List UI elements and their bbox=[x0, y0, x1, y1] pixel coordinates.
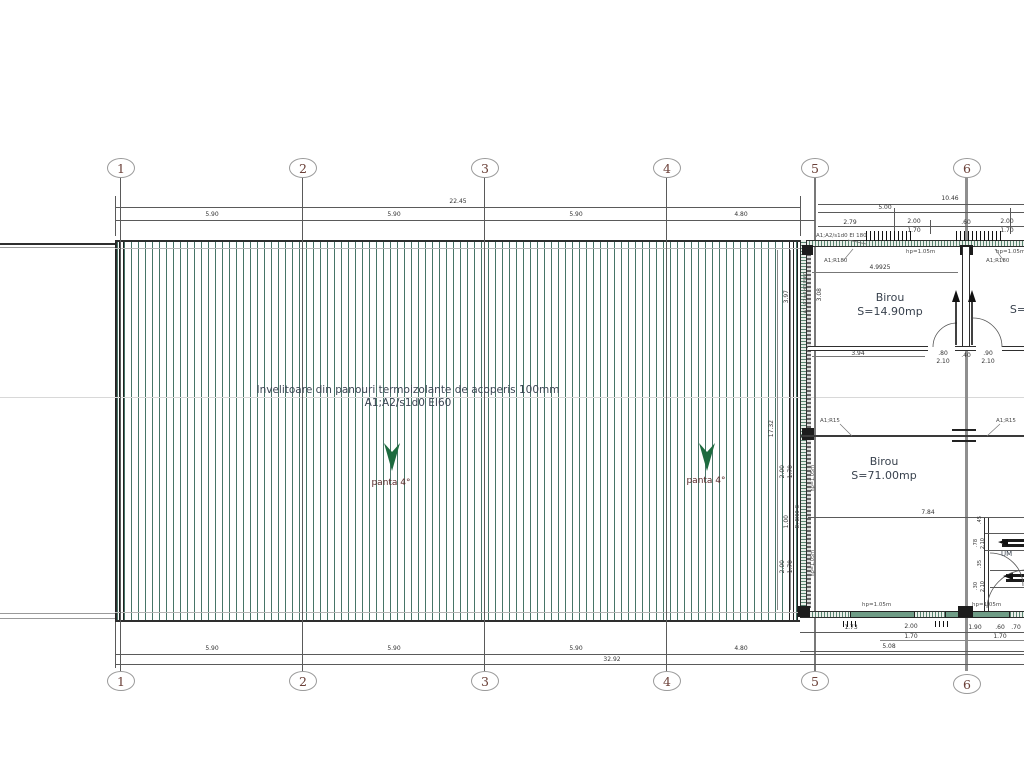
room-office2-area: S=71.00mp bbox=[851, 469, 916, 482]
entry-arrow-left-head-icon bbox=[952, 290, 960, 302]
left-wall-stub-top2 bbox=[0, 247, 115, 248]
dim-bottom-seg-2-3: 5.90 bbox=[387, 645, 400, 652]
window-symbol-south-2 bbox=[945, 611, 1010, 618]
axis-bubble-top-4: 4 bbox=[653, 158, 681, 178]
dim-annex-e: .70 bbox=[1011, 624, 1021, 631]
partition-horizontal-right bbox=[1002, 346, 1024, 351]
window-symbol-south-1 bbox=[850, 611, 915, 618]
dim-beam-span: 7.84 bbox=[921, 509, 934, 516]
dim-annex-b: 2.00 bbox=[904, 623, 917, 630]
column-nw bbox=[802, 245, 813, 255]
dim-annex-b2: 1.70 bbox=[904, 633, 917, 640]
axis-number: 4 bbox=[663, 161, 671, 176]
note-beam-fire-left: A1;R180 bbox=[824, 258, 847, 264]
dim-west-d: 2.00 bbox=[779, 560, 786, 573]
axis-number: 2 bbox=[299, 674, 307, 689]
note-hp-south-2: hp=1.05m bbox=[972, 602, 1001, 608]
dim-chain-inner bbox=[790, 250, 791, 610]
axis-bubble-bottom-3: 3 bbox=[471, 671, 499, 691]
beam-break-bottom bbox=[952, 440, 976, 442]
dim-top-total: 22.45 bbox=[449, 198, 466, 205]
dim-pier: .40 bbox=[961, 352, 971, 359]
um-shelf-3 bbox=[990, 570, 1024, 571]
dim-line-inner-width bbox=[812, 272, 958, 273]
annex-north-wall bbox=[800, 240, 1024, 247]
left-wall-stub-bottom2 bbox=[0, 618, 115, 619]
dim-west-b: 2.00 bbox=[779, 465, 786, 478]
note-beam15-right: A1;R15 bbox=[996, 418, 1016, 424]
dim-door1-width: .80 bbox=[938, 350, 948, 357]
roof-note-line2: A1;A2/s1d0 EI60 bbox=[365, 397, 452, 410]
dim-top-sub-c: .60 bbox=[961, 219, 971, 226]
grid-line-5 bbox=[814, 177, 816, 671]
dim-bottom-seg-4-5: 4.80 bbox=[734, 645, 747, 652]
window-symbol-north-1 bbox=[866, 231, 912, 241]
window-symbol-north-2 bbox=[956, 231, 1003, 241]
note-hp-north-1: hp=1.05m bbox=[906, 249, 935, 255]
note-door-spec: D; EI60-C bbox=[795, 505, 801, 528]
dim-um-d2: 2.10 bbox=[980, 581, 987, 592]
dim-top-sub-d: 2.00 bbox=[1000, 218, 1013, 225]
dim-west-a: 3.97 bbox=[783, 290, 790, 303]
axis-number: 5 bbox=[811, 161, 819, 176]
note-beam15-left: A1;R15 bbox=[820, 418, 840, 424]
partition-horizontal-mid bbox=[955, 346, 976, 351]
dim-witness-5 bbox=[800, 196, 801, 236]
dim-um-b2: 2.10 bbox=[980, 538, 987, 549]
radiator-2-bar2 bbox=[1006, 579, 1024, 582]
beam-line bbox=[800, 435, 1024, 437]
note-beam-fire-right: A1;R180 bbox=[986, 258, 1009, 264]
roof-hatch-area bbox=[115, 240, 800, 622]
note-hp-south-1: hp=1.05m bbox=[862, 602, 891, 608]
window-mark-south-2 bbox=[935, 621, 949, 627]
axis-number: 1 bbox=[117, 161, 125, 176]
dim-top-seg-4-5: 4.80 bbox=[734, 211, 747, 218]
dim-door2-height: 2.10 bbox=[981, 358, 994, 365]
axis-bubble-top-3: 3 bbox=[471, 158, 499, 178]
slope-label-right: panta 4° bbox=[686, 476, 725, 486]
radiator-2-bar1 bbox=[1006, 574, 1024, 577]
dim-annex-d: .60 bbox=[995, 624, 1005, 631]
roof-inner-top-line bbox=[115, 248, 800, 249]
axis-number: 2 bbox=[299, 161, 307, 176]
dim-west-b2: 1.70 bbox=[787, 465, 794, 478]
dim-door1-height: 2.10 bbox=[936, 358, 949, 365]
room-office1-name: Birou bbox=[876, 291, 905, 304]
dim-west-c: 1.00 bbox=[783, 515, 790, 528]
partition-horizontal-left bbox=[808, 346, 928, 351]
column-s-grid6 bbox=[958, 606, 973, 617]
dim-witness-r2 bbox=[930, 220, 931, 234]
axis-bubble-top-2: 2 bbox=[289, 158, 317, 178]
axis-number: 6 bbox=[963, 161, 971, 176]
note-hp-north-2: hp=1.05m bbox=[996, 249, 1024, 255]
axis-bubble-bottom-4: 4 bbox=[653, 671, 681, 691]
note-wall-fire: A1;A2/s1d0 EI 180 bbox=[816, 233, 867, 239]
dim-line-annex-2 bbox=[880, 640, 1024, 641]
dim-bottom-seg-1-2: 5.90 bbox=[205, 645, 218, 652]
dim-chain-outer bbox=[777, 250, 778, 610]
dim-top-seg-2-3: 5.90 bbox=[387, 211, 400, 218]
dim-line-beam-span bbox=[808, 517, 1024, 518]
dim-top-seg-3-4: 5.90 bbox=[569, 211, 582, 218]
dim-annex-d2: 1.70 bbox=[993, 633, 1006, 640]
grid-line-3 bbox=[484, 177, 485, 671]
radiator-1-bar2 bbox=[1002, 544, 1024, 547]
room-um-label: UM bbox=[1001, 550, 1012, 558]
dim-line-room1-width bbox=[812, 356, 925, 357]
column-w-mid bbox=[802, 428, 814, 440]
dim-top-sub-b: 2.00 bbox=[907, 218, 920, 225]
note-hp-west-2: hp=1.05m bbox=[810, 550, 816, 577]
dim-annex-c: 1.90 bbox=[968, 624, 981, 631]
dim-um-c: .35 bbox=[977, 560, 984, 568]
dim-um-a: .45 bbox=[977, 516, 984, 524]
axis-number: 3 bbox=[481, 161, 489, 176]
door-swing-arc-office1 bbox=[933, 323, 957, 347]
dim-witness-left bbox=[115, 196, 116, 236]
beam-break-top bbox=[952, 429, 976, 431]
dim-annex-inner-width: 4.9925 bbox=[870, 264, 891, 271]
dim-height-total: 17.32 bbox=[768, 420, 775, 437]
dim-line-bottom-segments bbox=[115, 654, 1024, 655]
dim-line-annex-total bbox=[800, 651, 1024, 652]
dim-bottom-total: 32.92 bbox=[603, 656, 620, 663]
left-wall-stub-top bbox=[0, 243, 115, 245]
axis-bubble-bottom-1: 1 bbox=[107, 671, 135, 691]
dim-door2-width: .90 bbox=[983, 350, 993, 357]
axis-bubble-bottom-6: 6 bbox=[953, 674, 981, 694]
dim-line-top-right-subs bbox=[818, 226, 1024, 227]
left-wall-stub-bottom bbox=[0, 613, 115, 614]
axis-bubble-top-1: 1 bbox=[107, 158, 135, 178]
door-swing-arc-office3 bbox=[973, 318, 1002, 347]
grid-line-4 bbox=[666, 177, 667, 671]
dim-line-top-total bbox=[115, 207, 800, 208]
room-office1-area: S=14.90mp bbox=[857, 305, 922, 318]
axis-number: 6 bbox=[963, 677, 971, 692]
roof-note-line1: Invelitoare din panouri termoizolante de… bbox=[257, 384, 560, 397]
section-axis-line bbox=[0, 397, 1024, 398]
um-shelf-4 bbox=[990, 587, 1024, 588]
dim-room1-width: 3.94 bbox=[851, 350, 864, 357]
roof-left-edge-lines bbox=[115, 242, 127, 620]
dim-um-b: .78 bbox=[973, 539, 980, 547]
column-sw bbox=[798, 606, 810, 617]
dim-bottom-seg-3-4: 5.90 bbox=[569, 645, 582, 652]
slope-label-left: panta 4° bbox=[371, 478, 410, 488]
grid-line-2 bbox=[302, 177, 303, 671]
room-office3-area: S= bbox=[1010, 303, 1024, 316]
radiator-1-bar1 bbox=[1002, 539, 1024, 542]
grid-line-1 bbox=[120, 177, 121, 671]
axis-number: 5 bbox=[811, 674, 819, 689]
um-shelf-1 bbox=[985, 533, 1024, 534]
note-hp-west-1: hp=1.05m bbox=[810, 465, 816, 492]
dim-top-seg-1-2: 5.90 bbox=[205, 211, 218, 218]
axis-bubble-top-5: 5 bbox=[801, 158, 829, 178]
dim-annex-a: 1.73 bbox=[844, 624, 857, 631]
axis-bubble-top-6: 6 bbox=[953, 158, 981, 178]
dim-top-right-total: 10.46 bbox=[941, 195, 958, 202]
dim-top-sub-a: 2.79 bbox=[843, 219, 856, 226]
room-office2-name: Birou bbox=[870, 455, 899, 468]
floor-plan-canvas: 22.45 10.46 5.90 5.90 5.90 4.80 5.00 2.7… bbox=[0, 0, 1024, 768]
axis-bubble-bottom-5: 5 bbox=[801, 671, 829, 691]
dim-top-right-span: 5.00 bbox=[878, 204, 891, 211]
dim-line-top-right-span bbox=[818, 212, 1024, 213]
dim-annex-total: 5.08 bbox=[882, 643, 895, 650]
axis-number: 1 bbox=[117, 674, 125, 689]
dim-west-d2: 1.70 bbox=[787, 560, 794, 573]
axis-number: 3 bbox=[481, 674, 489, 689]
dim-line-top-segments bbox=[115, 220, 815, 221]
dim-um-d: .30 bbox=[973, 582, 980, 590]
dim-line-bottom-total bbox=[115, 664, 1024, 665]
partition-offices-vertical bbox=[962, 247, 970, 348]
um-west-wall bbox=[984, 517, 989, 611]
axis-bubble-bottom-2: 2 bbox=[289, 671, 317, 691]
dim-witness-bottom-left bbox=[115, 622, 116, 668]
note-wall-fire-vertical: A1;A2/s1d0 EI60 bbox=[803, 272, 809, 313]
dim-line-top-right-total bbox=[818, 204, 1024, 205]
dim-height-upper: 3.08 bbox=[816, 288, 823, 301]
roof-inner-bottom-line bbox=[115, 612, 800, 613]
axis-number: 4 bbox=[663, 674, 671, 689]
